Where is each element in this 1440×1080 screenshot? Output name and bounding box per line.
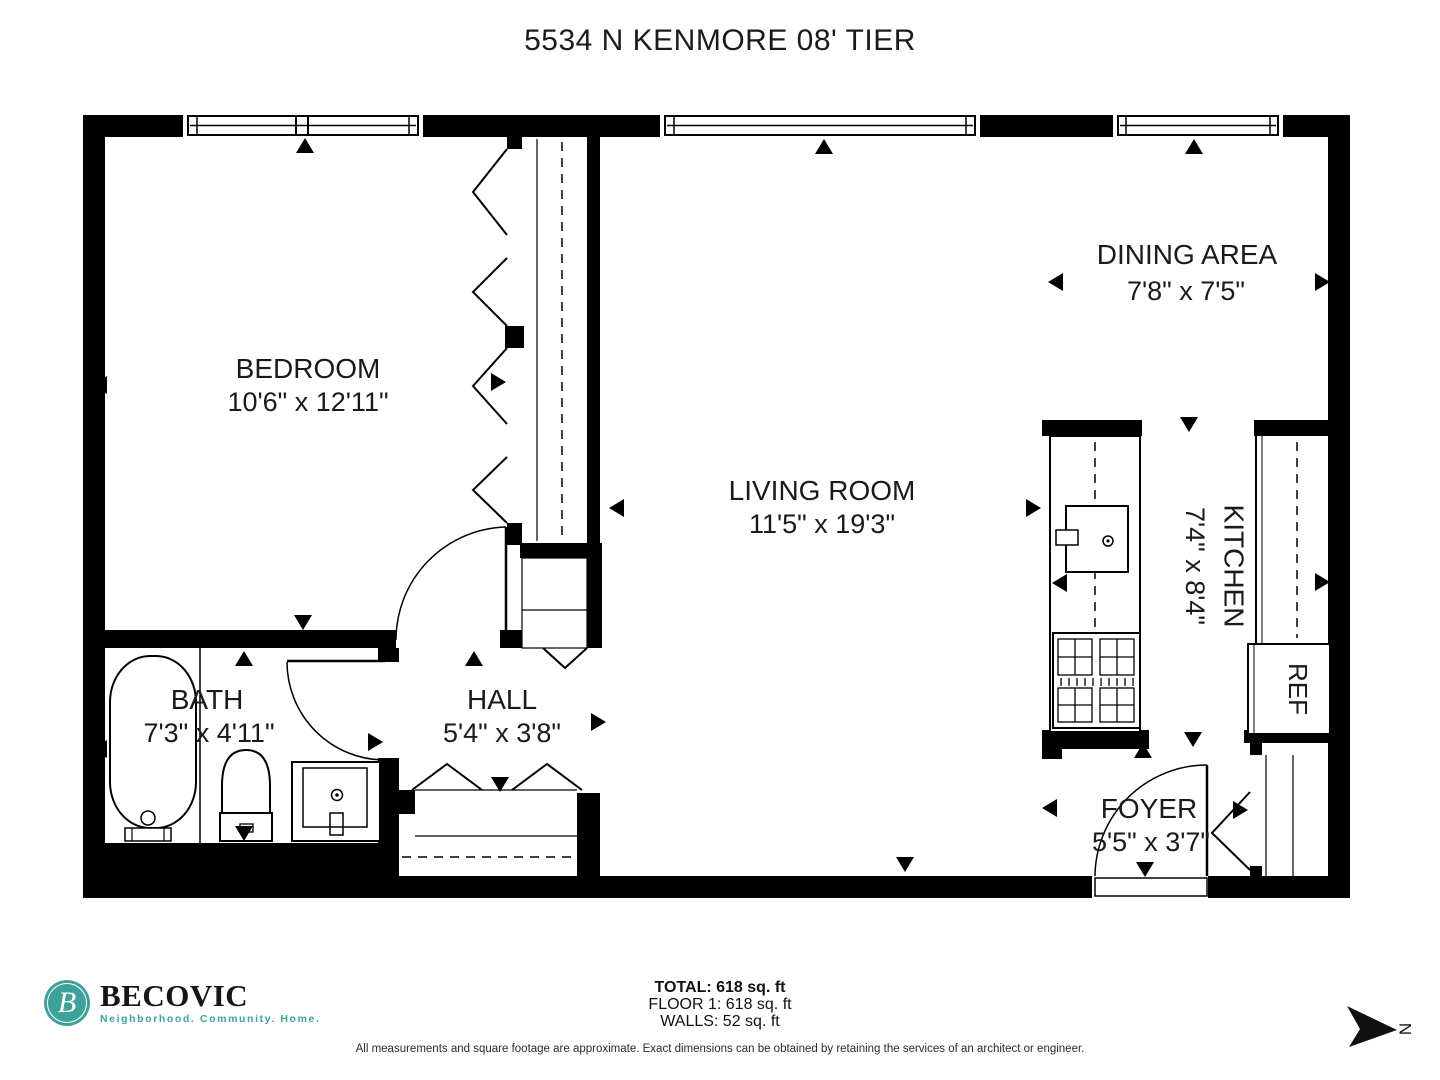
closet-accordion-door (473, 258, 507, 326)
bifold-door (512, 764, 582, 790)
closet-accordion-door (473, 149, 507, 235)
bifold-door (412, 764, 482, 790)
stove (1053, 633, 1140, 728)
brand-logo-icon: B (44, 980, 90, 1026)
foyer-label: FOYER (1101, 793, 1197, 824)
kitchen-sink (1056, 506, 1128, 572)
total-area: TOTAL: 618 sq. ft (648, 979, 791, 996)
living-room-window (660, 113, 980, 139)
bedroom-window (183, 113, 423, 139)
entry-threshold (1092, 876, 1208, 898)
bath-label: BATH (171, 684, 244, 715)
bedroom-label: BEDROOM (236, 353, 381, 384)
brand-monogram: B (44, 980, 90, 1026)
north-arrow-icon: N (1347, 1006, 1415, 1047)
kitchen-label: KITCHEN (1219, 505, 1250, 628)
living-room-dims: 11'5" x 19'3" (749, 509, 895, 539)
dining-window (1113, 113, 1283, 139)
foyer-dims: 5'5" x 3'7" (1092, 827, 1210, 857)
hall-dims: 5'4" x 3'8" (443, 718, 561, 748)
bedroom-dims: 10'6" x 12'11" (227, 387, 388, 417)
floor-plan-drawing: BEDROOM 10'6" x 12'11" LIVING ROOM 11'5"… (0, 0, 1440, 1080)
hall-label: HALL (467, 684, 537, 715)
bathroom-vanity-sink (292, 762, 380, 841)
floor-area: FLOOR 1: 618 sq. ft (648, 996, 791, 1013)
bath-dims: 7'3" x 4'11" (143, 718, 274, 748)
dining-area-label: DINING AREA (1097, 239, 1278, 270)
bedroom-door (396, 527, 506, 640)
floor-plan-page: 5534 N KENMORE 08' TIER (0, 0, 1440, 1080)
foyer-closet (1212, 755, 1293, 876)
disclaimer-text: All measurements and square footage are … (0, 1043, 1440, 1055)
brand-logo: B BECOVIC Neighborhood. Community. Home. (44, 980, 320, 1026)
closet-accordion-door (473, 457, 507, 523)
closet-accordion-door (473, 348, 507, 424)
brand-name: BECOVIC (100, 980, 320, 1012)
living-room-label: LIVING ROOM (729, 475, 916, 506)
kitchen-dims: 7'4" x 8'4" (1180, 507, 1210, 625)
dining-area-dims: 7'8" x 7'5" (1127, 276, 1245, 306)
walls-area: WALLS: 52 sq. ft (648, 1013, 791, 1030)
walls (83, 115, 1350, 898)
linen-closet (522, 558, 587, 668)
area-summary: TOTAL: 618 sq. ft FLOOR 1: 618 sq. ft WA… (648, 979, 791, 1030)
refrigerator-label: REF (1283, 663, 1313, 715)
closet-door (1212, 792, 1250, 870)
brand-tagline: Neighborhood. Community. Home. (100, 1013, 320, 1025)
north-label: N (1396, 1023, 1415, 1035)
closet-door-swing (543, 648, 587, 668)
